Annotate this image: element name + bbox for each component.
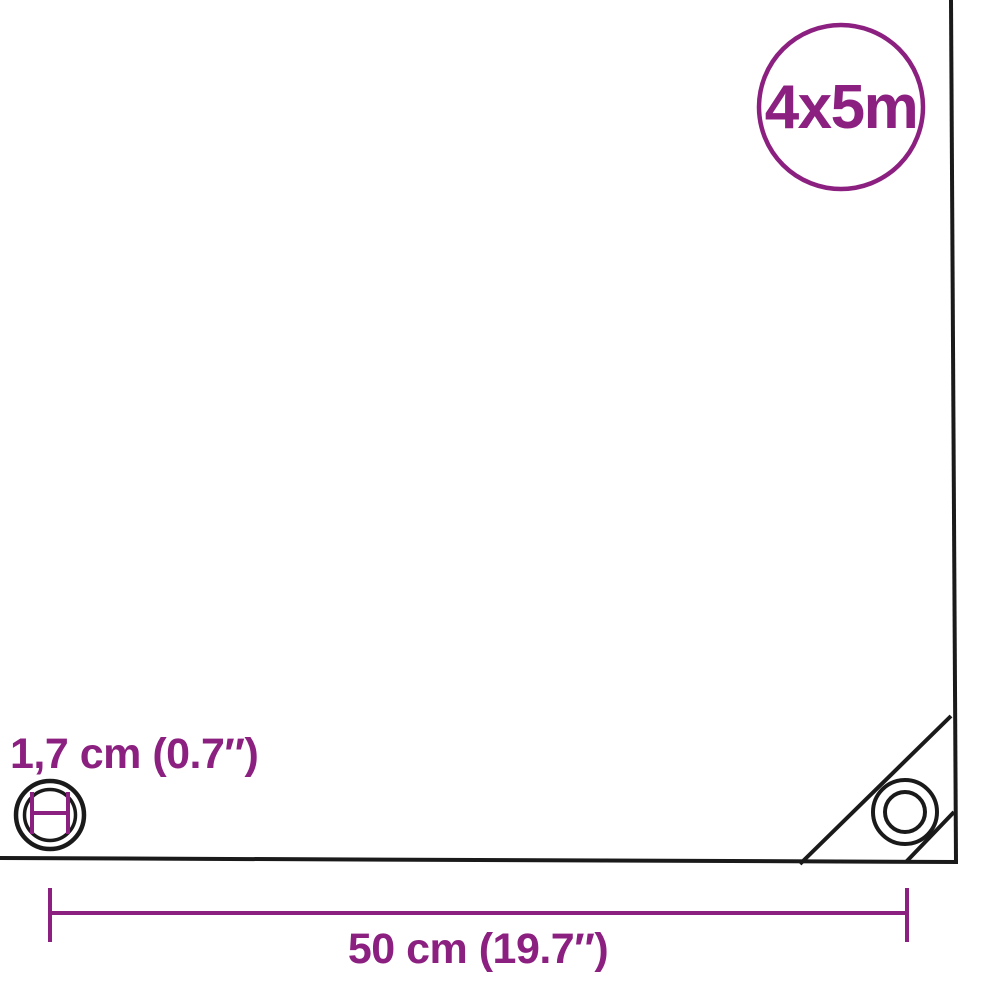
grommet-diameter-icon bbox=[16, 781, 84, 849]
size-badge-label: 4x5m bbox=[759, 25, 923, 189]
tarp-right-edge bbox=[951, 0, 956, 861]
corner-inner-seam bbox=[906, 812, 954, 862]
corner-grommet-icon bbox=[873, 780, 937, 844]
grommet-diameter-label: 1,7 cm (0.7″) bbox=[10, 730, 258, 779]
corner-grommet-outer-ring bbox=[873, 780, 937, 844]
tarpaulin-dimension-diagram: 4x5m 1,7 cm (0.7″) 50 cm (19.7″) bbox=[0, 0, 1000, 1000]
tarp-bottom-edge bbox=[0, 858, 958, 862]
corner-grommet-inner-ring bbox=[885, 792, 925, 832]
grommet-spacing-label: 50 cm (19.7″) bbox=[250, 925, 706, 974]
